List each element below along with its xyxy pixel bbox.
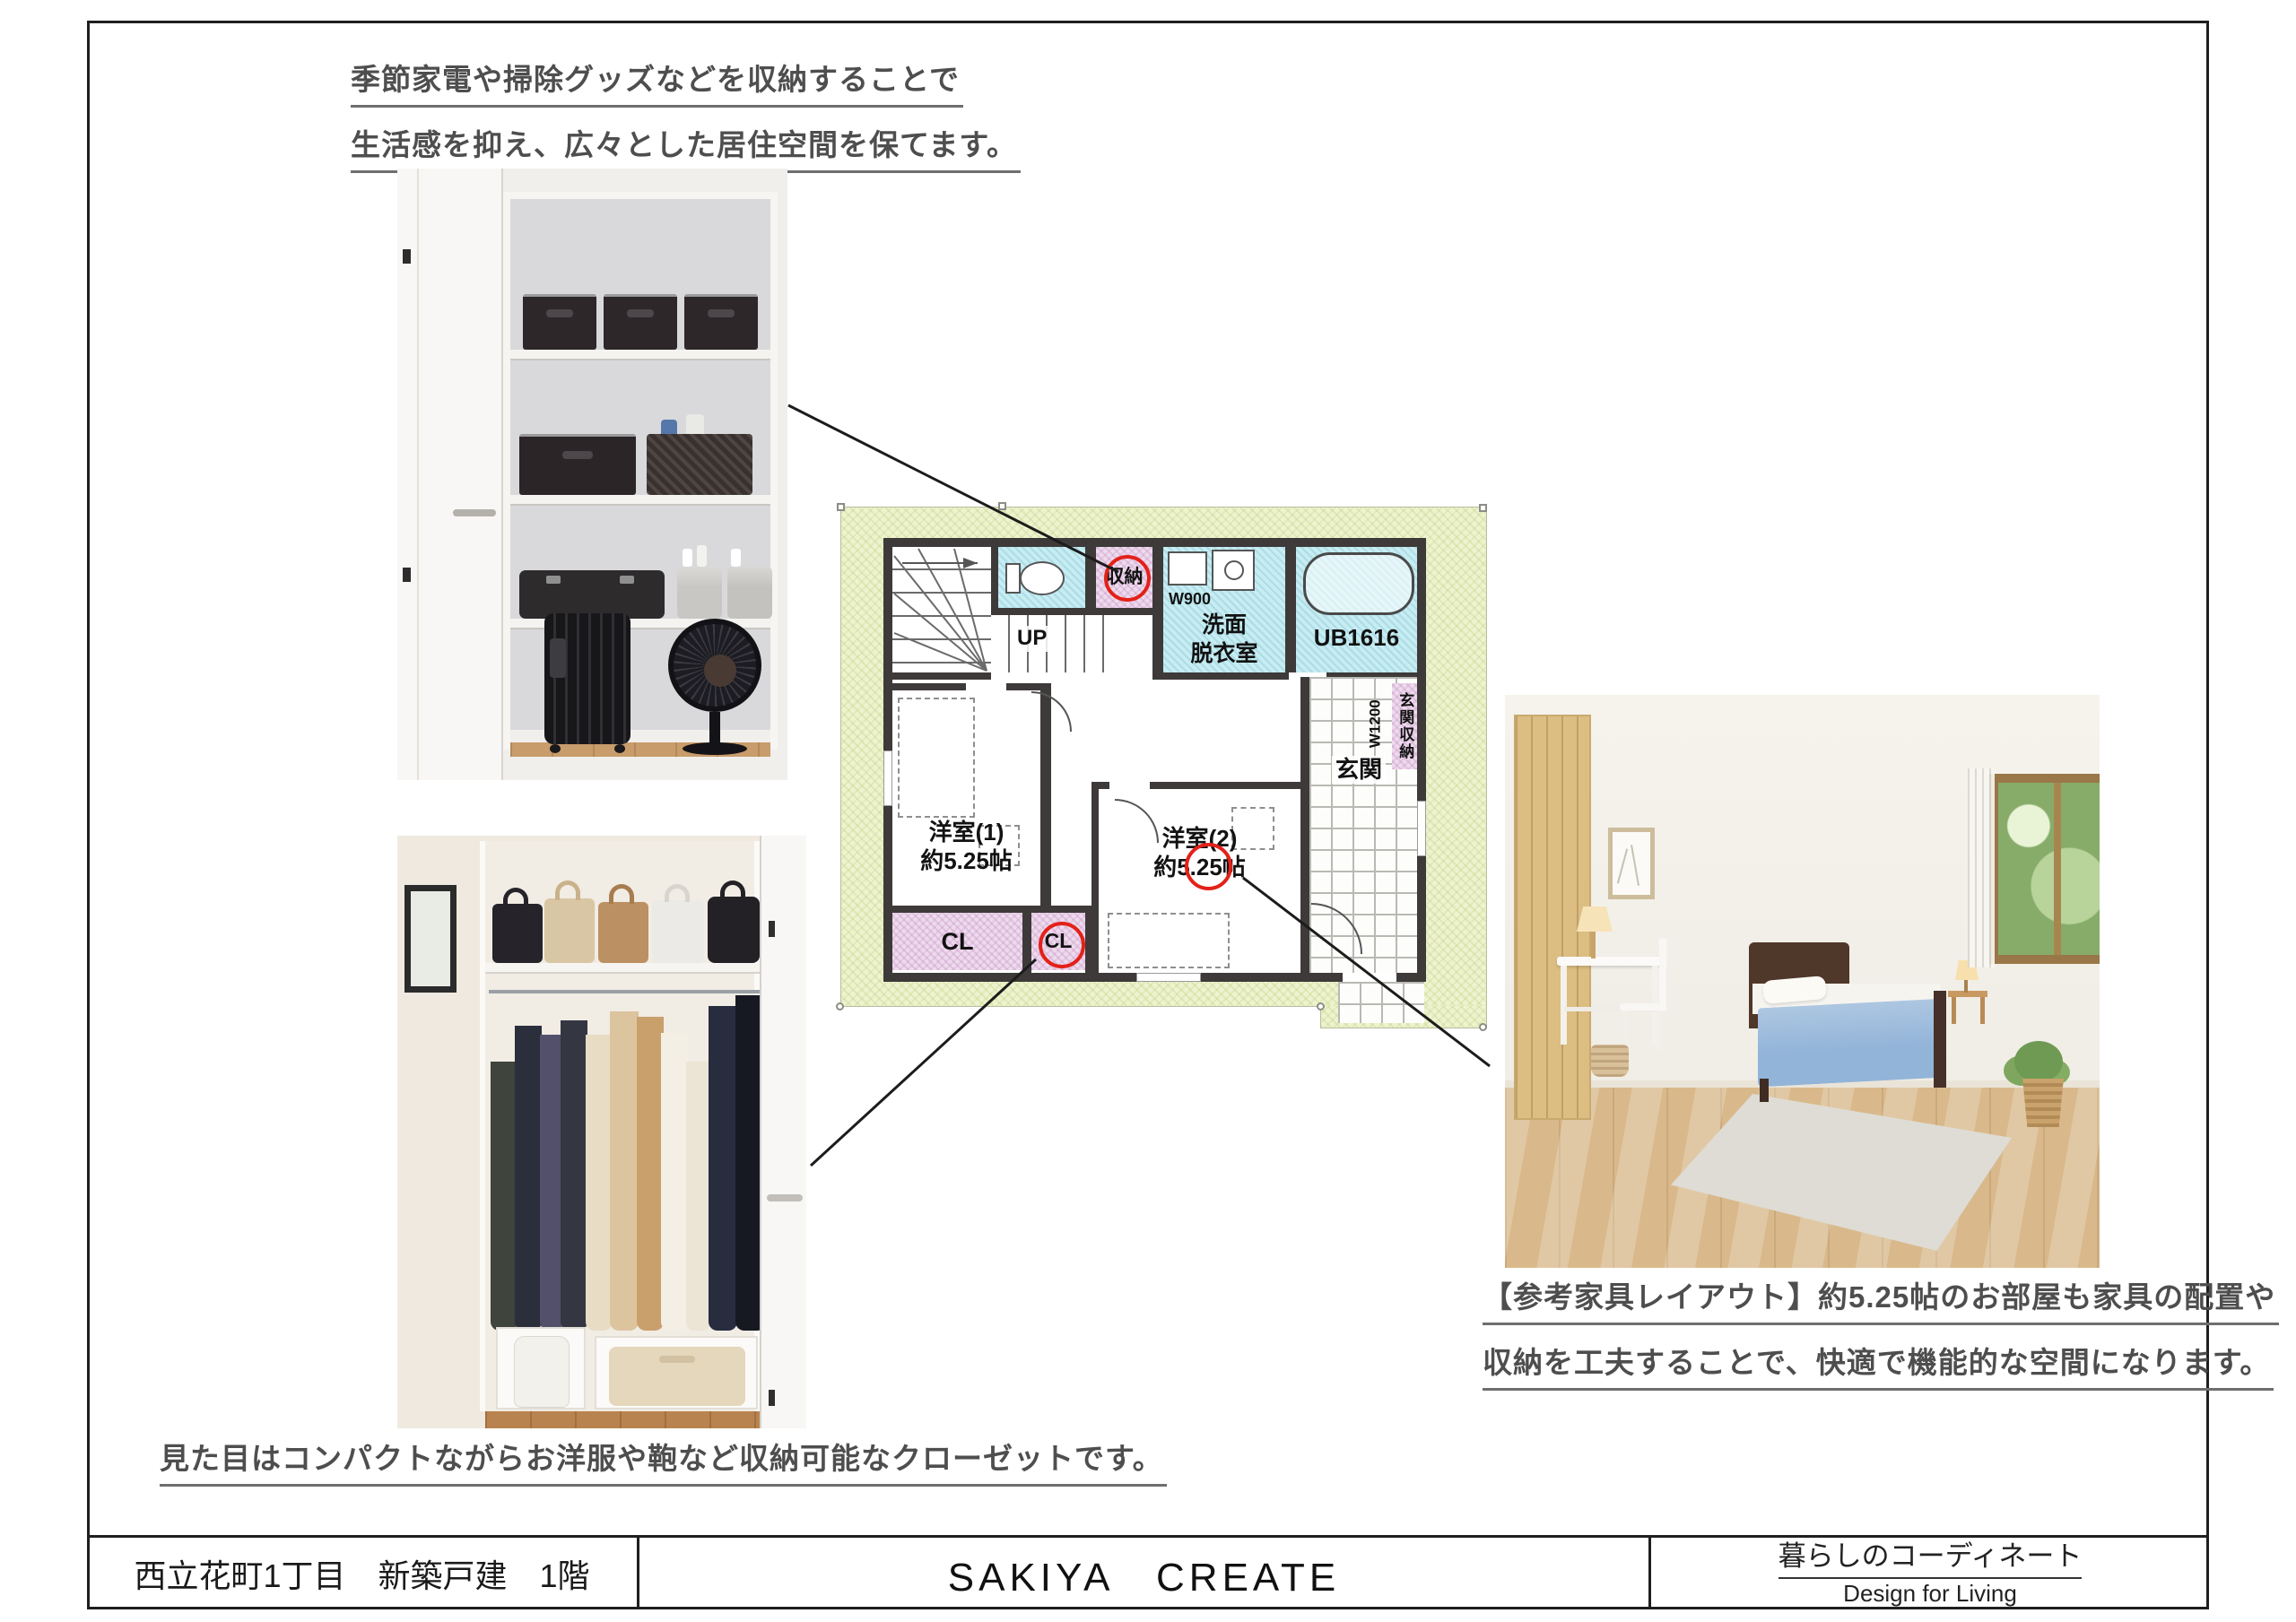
- wall: [991, 608, 1163, 615]
- box-handle-slot: [708, 309, 735, 317]
- toilet-tank-icon: [1005, 563, 1021, 594]
- shelf-unit: [496, 1327, 586, 1409]
- door-handle: [767, 1194, 803, 1201]
- door-hinge-icon: [769, 1390, 775, 1406]
- fan-hub: [704, 655, 736, 687]
- wood-floor: [485, 1411, 765, 1428]
- heater-control-panel: [550, 638, 566, 678]
- door-hinge-icon: [403, 249, 411, 264]
- bathtub-icon: [1303, 552, 1414, 615]
- survey-mark: [836, 1002, 844, 1010]
- handbag: [708, 897, 760, 963]
- coat: [709, 1006, 737, 1331]
- coat: [686, 1062, 711, 1331]
- door-handle: [453, 509, 496, 516]
- nightstand: [1948, 991, 1987, 997]
- window: [1989, 774, 2100, 964]
- felt-bin: [677, 567, 722, 619]
- lamp-stand: [1964, 978, 1968, 993]
- closet-1: CL: [892, 913, 1022, 970]
- botanical-sketch: [1617, 848, 1628, 883]
- bed-leg: [1760, 1079, 1769, 1102]
- bottle: [697, 545, 707, 567]
- washer-icon: [1212, 550, 1255, 591]
- window-sash: [2054, 783, 2061, 955]
- wall: [892, 906, 1094, 913]
- wooden-door: [1514, 715, 1591, 1120]
- wall: [1022, 906, 1031, 973]
- wall: [1300, 677, 1309, 973]
- heater-caster: [550, 744, 561, 753]
- handbag-handle: [609, 884, 634, 904]
- furniture-layout-caption: 【参考家具レイアウト】約5.25帖のお部屋も家具の配置や 収納を工夫することで、…: [1483, 1273, 2279, 1404]
- chair-leg: [1657, 1010, 1663, 1052]
- entrance-storage-label: 玄関収納: [1396, 692, 1413, 760]
- picture-frame: [404, 885, 457, 993]
- floor-plan: 収納 W900 洗面 脱衣室 UB1616 UP 洋室(1) 約: [840, 507, 1487, 1028]
- storage-caption-line1: 季節家電や掃除グッズなどを収納することで: [351, 56, 963, 108]
- wall: [1040, 683, 1051, 913]
- wall: [1091, 782, 1099, 973]
- handbag: [598, 902, 648, 963]
- survey-mark: [1479, 504, 1487, 512]
- storage-caption-line2: 生活感を抑え、広々とした居住空間を保てます。: [351, 121, 1021, 173]
- cylinder-bin: [514, 1336, 570, 1408]
- entrance-storage-width-label: W1200: [1367, 699, 1385, 748]
- storage-box: [684, 294, 758, 350]
- toolbox-latch: [620, 576, 634, 584]
- nightstand-leg: [1980, 997, 1985, 1024]
- wall: [892, 672, 991, 680]
- survey-mark: [998, 502, 1006, 510]
- entrance-label: 玄関: [1332, 756, 1386, 784]
- toolbox-latch: [546, 576, 561, 584]
- window-marker: [1417, 801, 1426, 856]
- botanical-sketch: [1631, 845, 1639, 886]
- felt-bin: [727, 567, 772, 619]
- plant-foliage: [2014, 1041, 2063, 1082]
- toilet-room: [998, 547, 1085, 608]
- door-edge-line: [417, 169, 419, 780]
- closet-caption: 見た目はコンパクトながらお洋服や鞄など収納可能なクローゼットです。: [160, 1435, 1167, 1500]
- washroom: W900 洗面 脱衣室: [1163, 547, 1285, 672]
- wardrobe-door-panel: [760, 836, 806, 1428]
- closet-caption-line: 見た目はコンパクトながらお洋服や鞄など収納可能なクローゼットです。: [160, 1435, 1167, 1487]
- window-marker: [883, 750, 892, 806]
- box-handle-slot: [627, 309, 654, 317]
- coat: [540, 1035, 563, 1331]
- bottle: [731, 549, 741, 567]
- oil-heater: [544, 613, 631, 744]
- storage-box: [519, 434, 636, 495]
- fan-base: [683, 742, 747, 755]
- storage-caption: 季節家電や掃除グッズなどを収納することで 生活感を抑え、広々とした居住空間を保て…: [351, 56, 1021, 186]
- bathroom: UB1616: [1296, 547, 1417, 672]
- chair-back: [1659, 939, 1666, 1010]
- door-hinge-icon: [769, 921, 775, 937]
- coat: [610, 1011, 639, 1331]
- closet1-label: CL: [942, 927, 974, 956]
- washroom-label-1: 洗面: [1163, 612, 1285, 638]
- picture-frame: [1608, 828, 1655, 899]
- bed-footboard: [1934, 991, 1946, 1088]
- footer-company-name: SAKIYA CREATE: [639, 1538, 1648, 1609]
- coat: [637, 1017, 664, 1331]
- storage-box: [604, 294, 677, 350]
- shelf: [485, 963, 765, 974]
- brand-subtitle: Design for Living: [1843, 1579, 2017, 1609]
- stairs-area: [892, 547, 991, 677]
- wall: [1085, 547, 1096, 615]
- sink-icon: [1168, 551, 1207, 585]
- furniture-caption-line2: 収納を工夫することで、快適で機能的な空間になります。: [1483, 1339, 2274, 1391]
- window-marker: [1136, 973, 1201, 982]
- door-hinge-icon: [403, 568, 411, 582]
- entrance-door-gap: [1343, 973, 1396, 982]
- handbag: [652, 900, 704, 963]
- coat: [586, 1035, 613, 1331]
- survey-mark: [837, 503, 845, 511]
- shelf-unit: [595, 1336, 758, 1409]
- handbag: [492, 904, 543, 963]
- wicker-basket: [647, 434, 752, 495]
- box-handle-slot: [546, 309, 573, 317]
- washer-drum-icon: [1224, 560, 1244, 580]
- basket-handle: [659, 1356, 695, 1363]
- handbag-handle: [503, 888, 528, 906]
- property-title-text: 西立花町1丁目 新築戸建 1階: [134, 1550, 589, 1597]
- furniture-caption-line1: 【参考家具レイアウト】約5.25帖のお部屋も家具の配置や: [1483, 1273, 2279, 1325]
- hanging-coats: [491, 995, 761, 1354]
- entrance-storage: 玄関収納: [1392, 683, 1417, 769]
- highlight-circle-closet: [1039, 922, 1085, 968]
- wall: [1285, 547, 1296, 680]
- clothes-rod: [489, 990, 761, 993]
- shelf: [510, 350, 770, 360]
- toolbox: [519, 570, 665, 619]
- survey-mark: [1317, 1002, 1325, 1010]
- furniture-outline-bed: [1108, 913, 1230, 968]
- coat: [491, 1062, 517, 1331]
- wardrobe-photo: [397, 836, 806, 1428]
- survey-mark: [1479, 1023, 1487, 1031]
- bottle: [683, 549, 692, 567]
- shelf: [510, 495, 770, 506]
- handbag-handle: [720, 880, 745, 898]
- wall: [991, 547, 998, 615]
- heater-caster: [614, 744, 625, 753]
- bathroom-label: UB1616: [1296, 624, 1417, 652]
- footer-brand: 暮らしのコーディネート Design for Living: [1651, 1538, 2209, 1609]
- closet-storage-photo: [397, 169, 787, 780]
- company-name-text: SAKIYA CREATE: [948, 1545, 1340, 1602]
- door-gap: [1109, 782, 1150, 789]
- wardrobe-opening: [480, 841, 760, 1411]
- bedroom-photo: [1505, 695, 2100, 1268]
- coat: [561, 1020, 587, 1331]
- lamp-stand: [1591, 930, 1596, 958]
- stairs-up-label: UP: [1013, 626, 1050, 652]
- fabric-basket: [609, 1347, 745, 1406]
- storage-box: [523, 294, 596, 350]
- furniture-outline-bed: [898, 698, 975, 818]
- footer-property-title: 西立花町1丁目 新築戸建 1階: [87, 1538, 637, 1609]
- desk-leg: [1561, 966, 1567, 1045]
- woven-basket: [1591, 1045, 1629, 1077]
- curtain: [1968, 768, 1995, 967]
- box-handle-slot: [562, 451, 593, 459]
- closet-door-panel: [397, 169, 503, 780]
- door-gap: [966, 683, 1006, 690]
- closet-opening: [503, 192, 778, 750]
- entrance-porch: [1338, 982, 1424, 1023]
- desk: [1557, 957, 1663, 966]
- toilet-bowl-icon: [1020, 561, 1065, 595]
- handbag: [544, 898, 595, 963]
- blanket: [1758, 999, 1944, 1088]
- brand-title: 暮らしのコーディネート: [1779, 1540, 2083, 1579]
- washroom-width-label: W900: [1169, 590, 1211, 610]
- washroom-label-2: 脱衣室: [1163, 640, 1285, 667]
- handbag-handle: [665, 884, 690, 902]
- coat: [515, 1026, 542, 1331]
- room1-name-label: 洋室(1): [892, 819, 1040, 846]
- nightstand-leg: [1952, 997, 1956, 1024]
- highlight-circle-room2: [1185, 843, 1232, 890]
- plant-basket: [2020, 1079, 2066, 1127]
- highlight-circle-storage: [1104, 555, 1151, 602]
- coat: [661, 1033, 688, 1331]
- room1-size-label: 約5.25帖: [892, 847, 1040, 875]
- handbag-handle: [555, 880, 580, 900]
- electric-fan: [668, 619, 761, 712]
